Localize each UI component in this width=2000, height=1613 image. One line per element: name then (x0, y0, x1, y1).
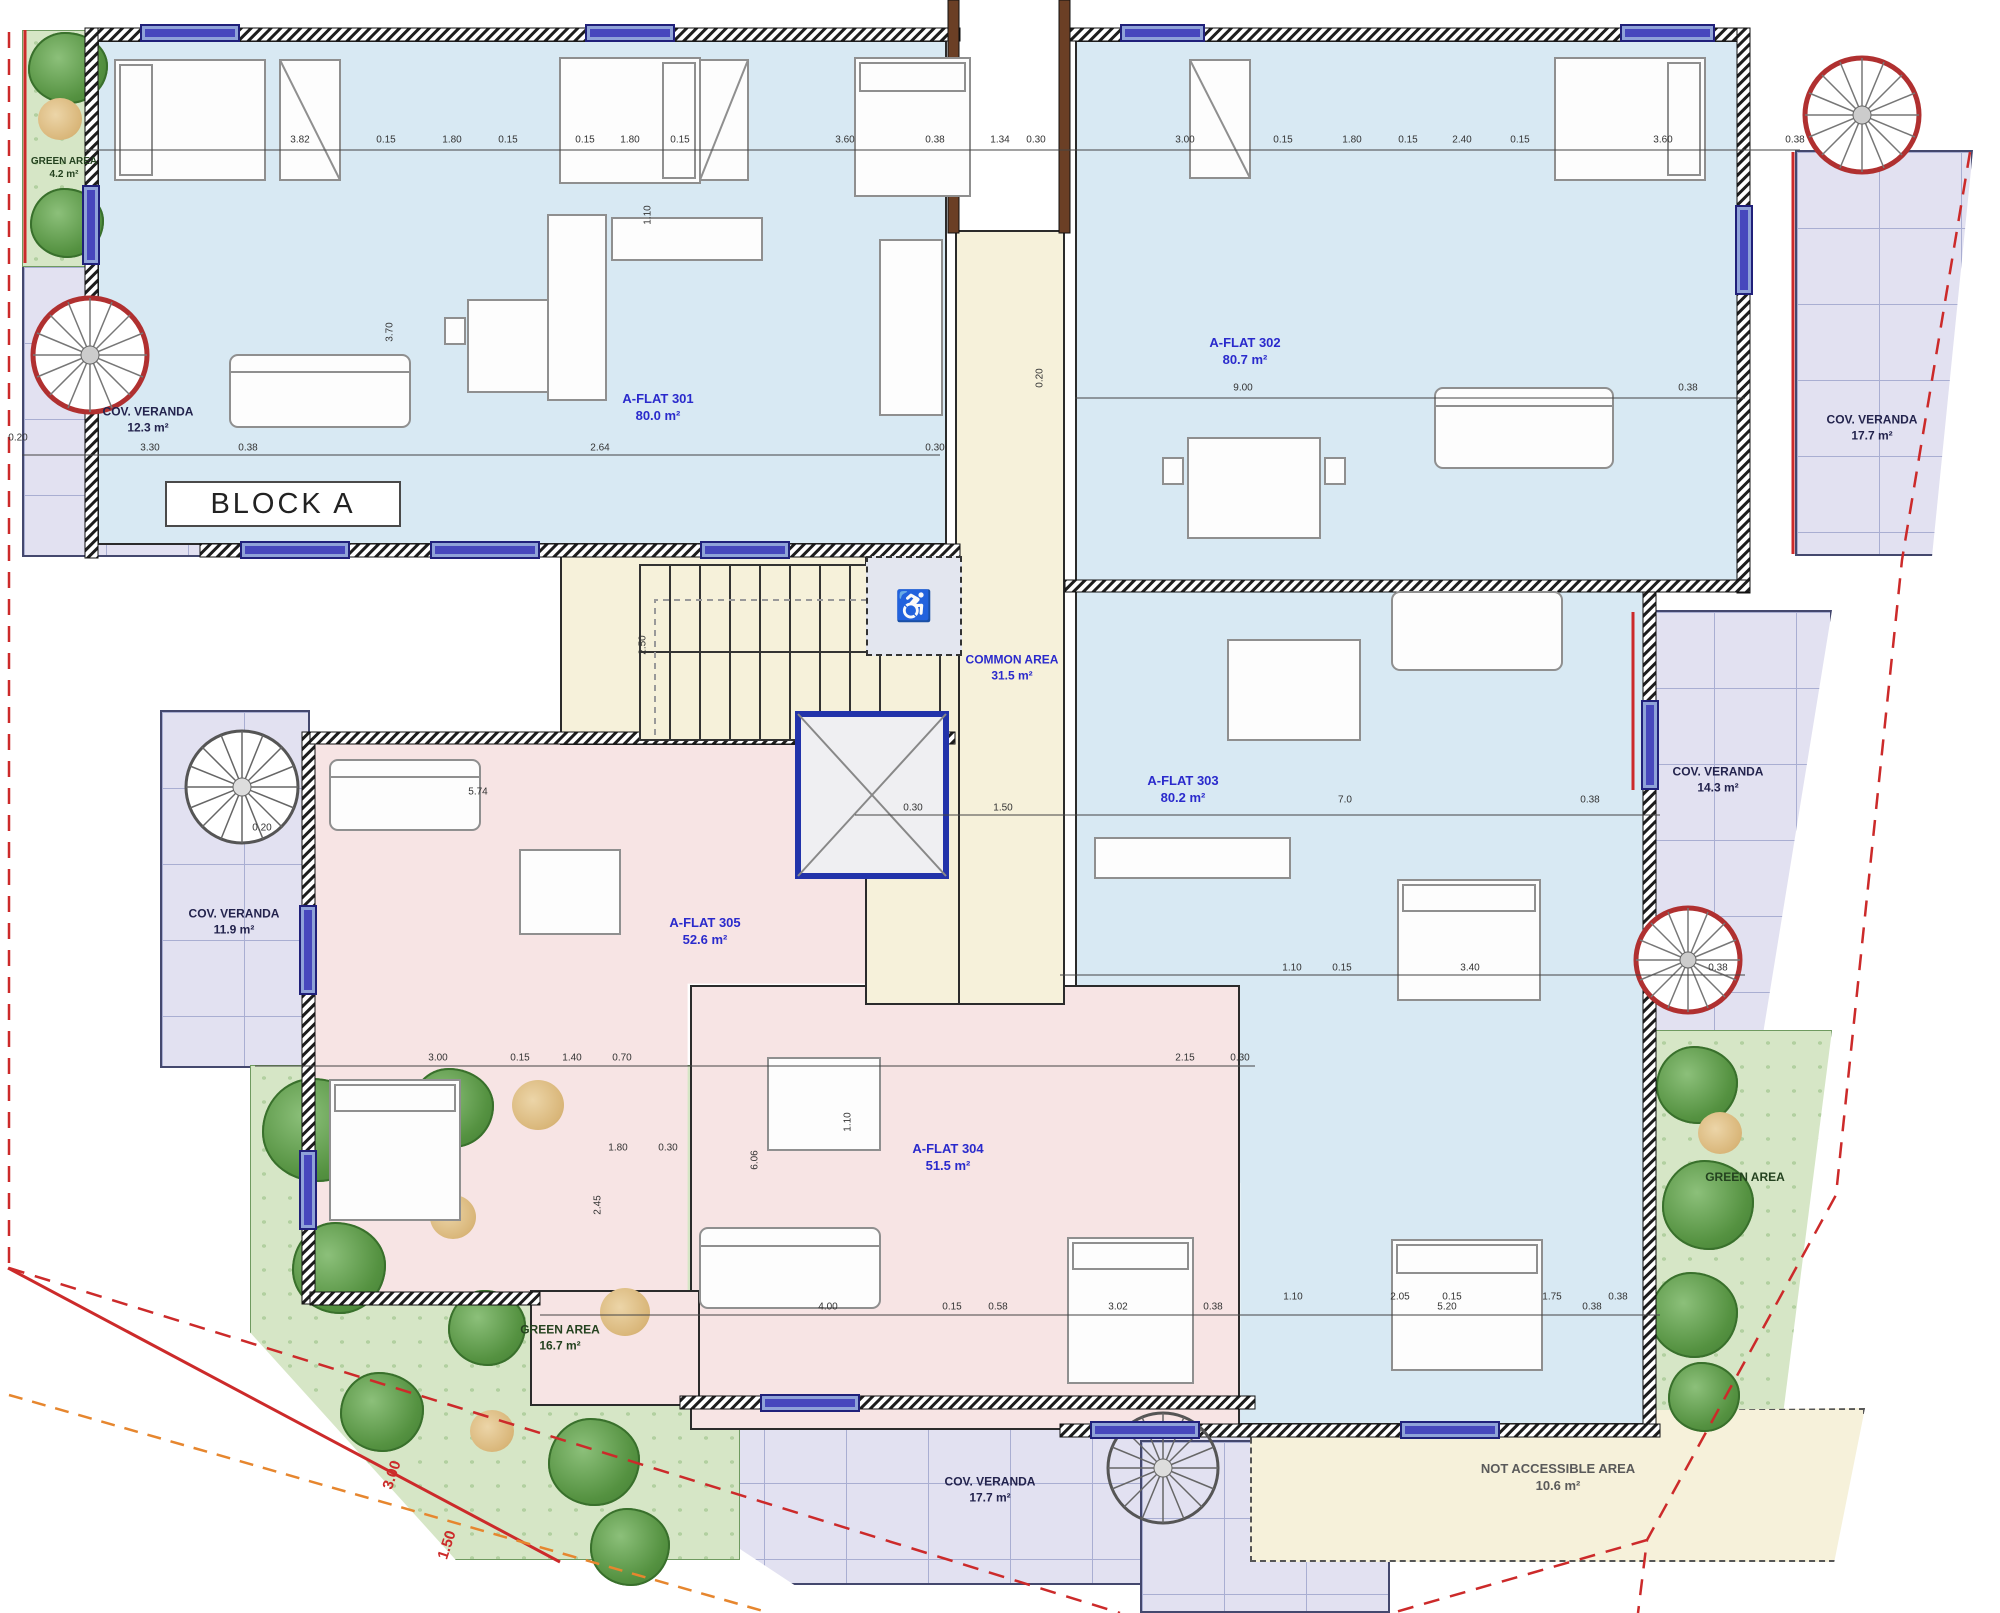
dimension-label: 0.15 (670, 135, 689, 146)
dimension-label: 2.40 (1452, 135, 1471, 146)
dimension-label: 1.80 (620, 135, 639, 146)
dimension-label: 0.38 (1785, 135, 1804, 146)
dimension-label: 0.38 (1708, 963, 1727, 974)
dimension-label: 0.38 (1582, 1302, 1601, 1313)
dimension-label: 0.30 (658, 1143, 677, 1154)
dimension-label: 1.10 (1282, 963, 1301, 974)
dimension-label: 0.15 (942, 1302, 961, 1313)
dimension-label: 3.00 (379, 1458, 404, 1491)
dimension-label: 3.60 (835, 135, 854, 146)
dimension-label: 3.82 (290, 135, 309, 146)
dimension-label: 0.30 (903, 803, 922, 814)
dimension-label: 1.10 (1283, 1292, 1302, 1303)
dimension-label: 2.15 (1175, 1053, 1194, 1064)
dimension-label: 0.15 (498, 135, 517, 146)
dimension-label: 0.20 (1035, 368, 1046, 387)
dimension-label: 3.30 (140, 443, 159, 454)
dimension-label: 1.80 (442, 135, 461, 146)
dimension-label: 5.20 (1437, 1302, 1456, 1313)
dimension-label: 0.38 (1608, 1292, 1627, 1303)
dimension-label: 0.38 (1678, 383, 1697, 394)
dimension-label: 0.15 (1398, 135, 1417, 146)
dimension-label: 4.00 (818, 1302, 837, 1313)
dimension-label: 1.10 (843, 1112, 854, 1131)
dimension-label: 1.40 (562, 1053, 581, 1064)
dimension-label: 1.80 (608, 1143, 627, 1154)
dimension-label: 3.40 (1460, 963, 1479, 974)
dimension-label: 5.74 (468, 787, 487, 798)
dimension-label: 0.38 (925, 135, 944, 146)
dimension-label: 9.00 (1233, 383, 1252, 394)
dimension-label: 2.50 (638, 635, 649, 654)
dimension-label: 1.34 (990, 135, 1009, 146)
dimension-label: 0.20 (8, 433, 27, 444)
dimension-label: 1.10 (643, 205, 654, 224)
floor-plan: ♿ (0, 0, 2000, 1613)
dimension-label: 2.45 (593, 1195, 604, 1214)
dimension-label: 0.38 (238, 443, 257, 454)
dimension-label: 3.02 (1108, 1302, 1127, 1313)
dimension-label: 0.15 (1273, 135, 1292, 146)
dimension-label: 2.64 (590, 443, 609, 454)
dimension-label: 1.50 (434, 1528, 459, 1561)
dimension-label: 0.20 (252, 823, 271, 834)
dimension-label: 0.30 (1230, 1053, 1249, 1064)
dimension-label: 1.50 (993, 803, 1012, 814)
dimension-label: 3.70 (385, 322, 396, 341)
dimension-label: 6.06 (750, 1150, 761, 1169)
dimension-label: 3.60 (1653, 135, 1672, 146)
dimension-label: 3.00 (428, 1053, 447, 1064)
dimension-label: 0.70 (612, 1053, 631, 1064)
dimension-labels: 3.820.151.800.150.151.800.153.600.381.34… (0, 0, 2000, 1613)
dimension-label: 0.15 (510, 1053, 529, 1064)
dimension-label: 3.00 (1175, 135, 1194, 146)
dimension-label: 0.15 (1510, 135, 1529, 146)
dimension-label: 1.80 (1342, 135, 1361, 146)
dimension-label: 0.30 (1026, 135, 1045, 146)
dimension-label: 7.0 (1338, 795, 1352, 806)
dimension-label: 0.30 (925, 443, 944, 454)
dimension-label: 0.15 (376, 135, 395, 146)
dimension-label: 0.38 (1203, 1302, 1222, 1313)
dimension-label: 0.58 (988, 1302, 1007, 1313)
dimension-label: 1.75 (1542, 1292, 1561, 1303)
dimension-label: 2.05 (1390, 1292, 1409, 1303)
dimension-label: 0.38 (1580, 795, 1599, 806)
dimension-label: 0.15 (1332, 963, 1351, 974)
dimension-label: 0.15 (575, 135, 594, 146)
